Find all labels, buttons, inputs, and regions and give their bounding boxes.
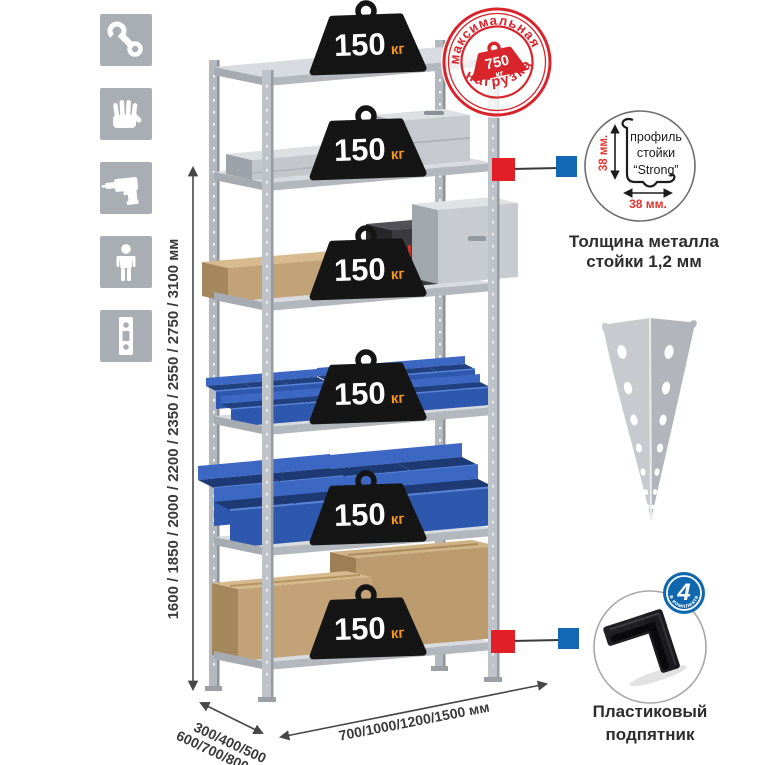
load-unit: кг xyxy=(391,625,405,642)
foot-callout-connector xyxy=(491,628,579,653)
blue-marker xyxy=(558,628,579,649)
wrench-icon xyxy=(100,14,152,66)
profile-caption-2: стойки 1,2 мм xyxy=(586,252,702,271)
kit-count-value: 4 xyxy=(676,579,690,606)
load-value: 150 xyxy=(333,496,386,533)
red-marker xyxy=(492,158,515,181)
load-value: 150 xyxy=(333,610,386,647)
load-value: 150 xyxy=(333,26,386,63)
profile-title-3: “Strong” xyxy=(633,163,678,177)
load-unit: кг xyxy=(391,266,405,283)
load-unit: кг xyxy=(391,146,405,163)
height-dimension-label: 1600 / 1850 / 2000 / 2200 / 2350 / 2550 … xyxy=(165,239,182,620)
kit-count-badge: 4 в комплекте xyxy=(663,572,705,614)
red-marker xyxy=(491,630,515,653)
profile-detail-circle: 38 мм. 38 мм. профиль стойки “Strong” То… xyxy=(569,111,719,271)
foot-caption-2: подпятник xyxy=(606,725,695,744)
profile-title-1: профиль xyxy=(630,130,682,144)
corner-post-image xyxy=(602,318,697,520)
infographic-canvas: 150кг 150кг 150кг 150кг 150кг 150кг xyxy=(0,0,765,765)
profile-title-2: стойки xyxy=(637,146,675,160)
load-value: 150 xyxy=(333,131,386,168)
foot-caption-1: Пластиковый xyxy=(593,702,708,721)
profile-callout-connector xyxy=(492,156,577,181)
product-infographic: 150кг 150кг 150кг 150кг 150кг 150кг xyxy=(0,0,765,765)
height-dimension: 1600 / 1850 / 2000 / 2200 / 2350 / 2550 … xyxy=(165,168,193,689)
perforated-profile-icon xyxy=(100,310,152,362)
aluminium-box xyxy=(412,197,518,284)
load-value: 150 xyxy=(333,251,386,288)
work-gloves-icon xyxy=(100,88,152,140)
width-dimension: 700/1000/1200/1500 мм xyxy=(281,684,546,744)
person-height-icon xyxy=(100,236,152,288)
depth-dimension: 300/400/500 600/700/800 мм xyxy=(174,703,280,765)
load-unit: кг xyxy=(391,511,405,528)
assembly-icons-column xyxy=(100,14,152,362)
load-value: 150 xyxy=(333,375,386,412)
load-unit: кг xyxy=(391,390,405,407)
profile-dim-horizontal: 38 мм. xyxy=(629,197,667,211)
blue-marker xyxy=(556,156,577,177)
drill-icon xyxy=(100,162,152,214)
profile-dim-vertical: 38 мм. xyxy=(598,135,610,171)
foot-detail-circle: 4 в комплекте Пластиковый подпятник xyxy=(593,572,708,744)
profile-caption-1: Толщина металла xyxy=(569,232,719,251)
load-unit: кг xyxy=(391,41,405,58)
max-load-stamp: максимальная нагрузка 750 кг xyxy=(431,0,564,128)
load-badge-shelf-1: 150кг xyxy=(311,1,423,72)
load-badge-shelf-4: 150кг xyxy=(311,350,423,421)
